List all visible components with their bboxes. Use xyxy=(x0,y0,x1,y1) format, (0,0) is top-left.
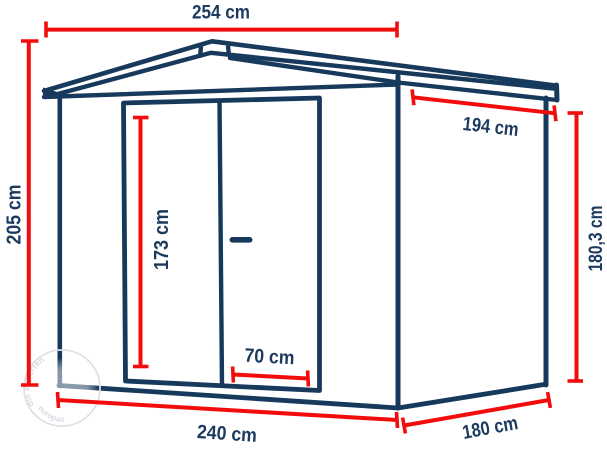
svg-text:173 cm: 173 cm xyxy=(151,209,173,270)
svg-text:205 cm: 205 cm xyxy=(4,185,26,245)
svg-text:194 cm: 194 cm xyxy=(462,113,520,141)
svg-text:70 cm: 70 cm xyxy=(244,345,295,370)
svg-text:254 cm: 254 cm xyxy=(192,2,250,24)
svg-text:240 cm: 240 cm xyxy=(196,421,257,447)
svg-text:180 cm: 180 cm xyxy=(461,412,520,444)
svg-text:180,3 cm: 180,3 cm xyxy=(585,206,607,272)
